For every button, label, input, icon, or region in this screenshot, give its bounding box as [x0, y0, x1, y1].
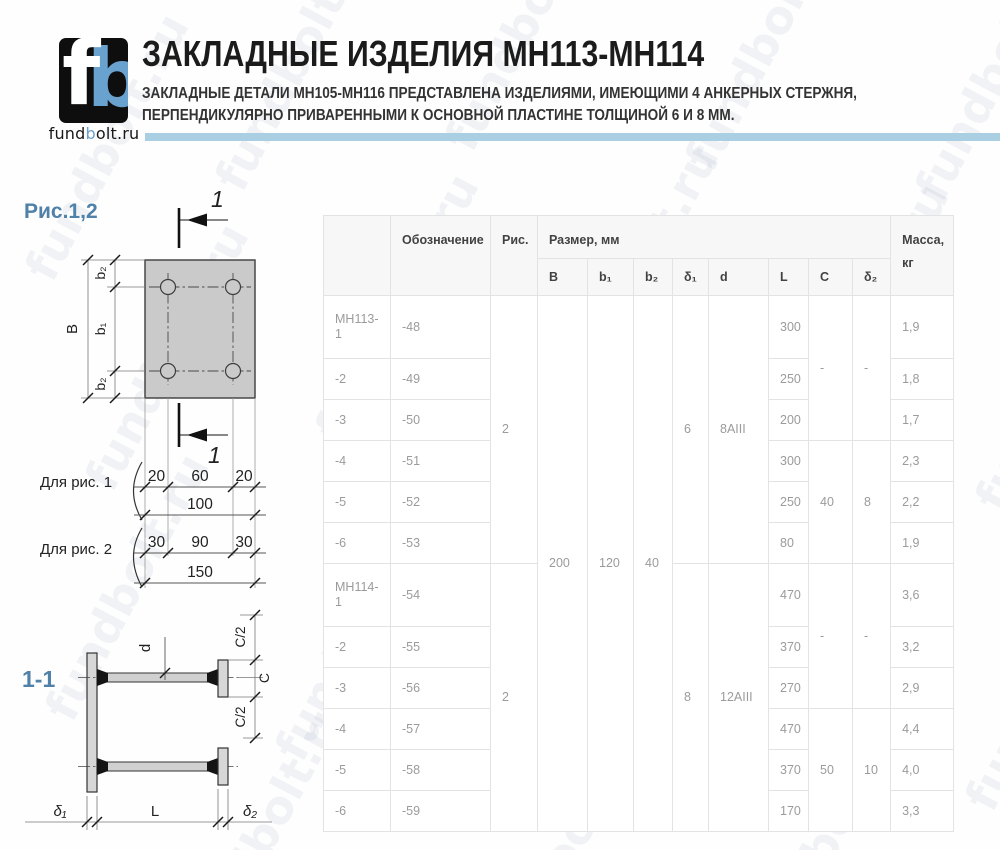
cell-mass: 1,9: [891, 296, 954, 359]
dim-label-b1: b₁: [92, 322, 108, 335]
cell-mass: 3,2: [891, 627, 954, 668]
dim-label-c: C: [256, 673, 272, 683]
cell-code: -55: [391, 627, 491, 668]
cell-label: МН113-1: [324, 296, 391, 359]
end-plate-bottom: [218, 748, 228, 785]
lower-extension-lines: [145, 398, 255, 588]
cell-fig: 2: [491, 564, 538, 832]
fundbolt-logo: b f: [59, 38, 128, 123]
section-mark-number: 1: [208, 442, 221, 468]
weld-icon: [207, 758, 218, 775]
page-title: ЗАКЛАДНЫЕ ИЗДЕЛИЯ МН113-МН114: [142, 33, 704, 75]
logo-name-part3: olt.ru: [96, 124, 140, 143]
dim-label-b2-bottom: b₂: [92, 377, 108, 390]
header-fig: Рис.: [491, 216, 538, 296]
cell-label: -6: [324, 523, 391, 564]
header-col-L: L: [769, 259, 809, 296]
figure-label: Рис.1,2: [24, 200, 98, 223]
watermark-text: fundbolt.ru: [904, 0, 1000, 209]
header-col-C: C: [809, 259, 853, 296]
cell-code: -59: [391, 791, 491, 832]
base-plate: [145, 260, 255, 398]
fig1-dimensions: Для рис. 1 20 60 20 100: [40, 462, 266, 520]
cell-L: 80: [769, 523, 809, 564]
logo-name-part1: fund: [49, 124, 86, 143]
cell-L: 200: [769, 400, 809, 441]
cell-code: -50: [391, 400, 491, 441]
cell-L: 170: [769, 791, 809, 832]
cell-L: 270: [769, 668, 809, 709]
weld-icon: [97, 669, 108, 686]
header-corner: [324, 216, 391, 296]
header-col-B: B: [538, 259, 588, 296]
cell-L: 470: [769, 564, 809, 627]
specification-table: Обозначение Рис. Размер, мм Масса, кг B …: [323, 215, 954, 832]
header-col-b1: b₁: [588, 259, 634, 296]
cell-L: 250: [769, 359, 809, 400]
dimension-extension-lines: [81, 260, 145, 398]
cell-label: -2: [324, 627, 391, 668]
weld-icon: [207, 669, 218, 686]
subtitle-line2: ПЕРПЕНДИКУЛЯРНО ПРИВАРЕННЫМИ К ОСНОВНОЙ …: [142, 105, 857, 127]
section-view-drawing: 1-1 d: [22, 610, 272, 830]
dim-label-b2-top: b₂: [92, 266, 108, 279]
cell-mass: 4,4: [891, 709, 954, 750]
cell-code: -56: [391, 668, 491, 709]
header-col-d: d: [709, 259, 769, 296]
cell-L: 370: [769, 750, 809, 791]
fig1-dim-60: 60: [191, 468, 209, 485]
cell-code: -54: [391, 564, 491, 627]
fig1-dim-20a: 20: [148, 468, 166, 485]
cell-label: -3: [324, 400, 391, 441]
dim-label-d: d: [137, 644, 154, 652]
fig1-total-100: 100: [187, 496, 213, 513]
cell-code: -48: [391, 296, 491, 359]
cell-b2: 40: [634, 296, 673, 832]
dim-label-delta1: δ₁: [53, 803, 66, 820]
cell-mass: 4,0: [891, 750, 954, 791]
cell-L: 470: [769, 709, 809, 750]
dim-label-c2-bottom: C/2: [233, 706, 248, 727]
cell-code: -51: [391, 441, 491, 482]
section-arrow-icon: [187, 214, 207, 227]
cell-delta2: -: [853, 564, 891, 709]
cell-delta1: 8: [673, 564, 709, 832]
bottom-dimensions: δ₁ L δ₂: [25, 789, 272, 830]
cell-label: МН114-1: [324, 564, 391, 627]
header-col-b2: b₂: [634, 259, 673, 296]
cell-code: -57: [391, 709, 491, 750]
header-designation: Обозначение: [391, 216, 491, 296]
cell-b1: 120: [588, 296, 634, 832]
cell-label: -5: [324, 750, 391, 791]
header-size-group: Размер, мм: [538, 216, 891, 259]
logo-name-part2: b: [86, 124, 96, 143]
dim-label-delta2: δ₂: [243, 803, 257, 820]
cell-L: 300: [769, 296, 809, 359]
cell-mass: 3,3: [891, 791, 954, 832]
section-marker-top: 1: [179, 186, 228, 248]
subtitle-line1: ЗАКЛАДНЫЕ ДЕТАЛИ МН105-МН116 ПРЕДСТАВЛЕН…: [142, 83, 857, 105]
cell-delta2: 10: [853, 709, 891, 832]
cell-mass: 2,3: [891, 441, 954, 482]
cell-mass: 3,6: [891, 564, 954, 627]
cell-L: 300: [769, 441, 809, 482]
section-arrow-icon: [187, 429, 207, 442]
cell-code: -49: [391, 359, 491, 400]
header-mass: Масса, кг: [891, 216, 954, 296]
fig2-dim-30a: 30: [148, 534, 166, 551]
cell-label: -4: [324, 441, 391, 482]
base-plate-section: [87, 653, 97, 792]
watermark-text: fundbolt.ru: [954, 535, 1000, 820]
cell-delta2: 8: [853, 441, 891, 564]
dim-label-c2-top: C/2: [233, 626, 248, 647]
cell-label: -5: [324, 482, 391, 523]
c-dimensions: C/2 C C/2: [228, 610, 272, 743]
fig2-caption: Для рис. 2: [40, 541, 112, 558]
cell-code: -52: [391, 482, 491, 523]
table-row: МН113-1 -48 2 200 120 40 6 8АIII 300 - -…: [324, 296, 954, 359]
dim-label-B: B: [64, 324, 81, 334]
cell-code: -53: [391, 523, 491, 564]
fig2-dimensions: Для рис. 2 30 90 30 150: [40, 528, 266, 588]
end-plate-top: [218, 660, 228, 697]
cell-L: 250: [769, 482, 809, 523]
cell-mass: 2,9: [891, 668, 954, 709]
cell-mass: 1,7: [891, 400, 954, 441]
blue-divider-line: [145, 133, 1000, 141]
cell-C: 40: [809, 441, 853, 564]
cell-C: -: [809, 296, 853, 441]
cell-delta1: 6: [673, 296, 709, 564]
cell-fig: 2: [491, 296, 538, 564]
cell-d: 8АIII: [709, 296, 769, 564]
anchor-rod-top: [97, 673, 218, 682]
section-marker-bottom: 1: [179, 403, 228, 468]
cell-label: -3: [324, 668, 391, 709]
catalog-page: fundbolt.ru fundbolt.ru fundbolt.ru fund…: [0, 0, 1000, 850]
section-mark-number: 1: [211, 186, 224, 212]
cell-mass: 1,9: [891, 523, 954, 564]
header-col-delta2: δ₂: [853, 259, 891, 296]
cell-d: 12АIII: [709, 564, 769, 832]
cell-mass: 1,8: [891, 359, 954, 400]
technical-drawings: Рис.1,2 1: [0, 150, 323, 850]
page-subtitle: ЗАКЛАДНЫЕ ДЕТАЛИ МН105-МН116 ПРЕДСТАВЛЕН…: [142, 83, 857, 127]
cell-label: -4: [324, 709, 391, 750]
cell-mass: 2,2: [891, 482, 954, 523]
fig2-dim-90: 90: [191, 534, 209, 551]
fig1-caption: Для рис. 1: [40, 474, 112, 491]
cell-C: 50: [809, 709, 853, 832]
cell-delta2: -: [853, 296, 891, 441]
header-col-delta1: δ₁: [673, 259, 709, 296]
section-label: 1-1: [22, 666, 55, 692]
cell-L: 370: [769, 627, 809, 668]
cell-code: -58: [391, 750, 491, 791]
cell-label: -2: [324, 359, 391, 400]
cell-label: -6: [324, 791, 391, 832]
fig2-total-150: 150: [187, 564, 213, 581]
watermark-text: fundbolt.ru: [964, 235, 1000, 520]
anchor-rod-bottom: [97, 762, 218, 771]
plan-view-drawing: Рис.1,2 1: [24, 186, 266, 588]
logo-letter-f: f: [62, 38, 100, 123]
cell-C: -: [809, 564, 853, 709]
cell-B: 200: [538, 296, 588, 832]
dim-label-L: L: [151, 803, 159, 820]
weld-icon: [97, 758, 108, 775]
